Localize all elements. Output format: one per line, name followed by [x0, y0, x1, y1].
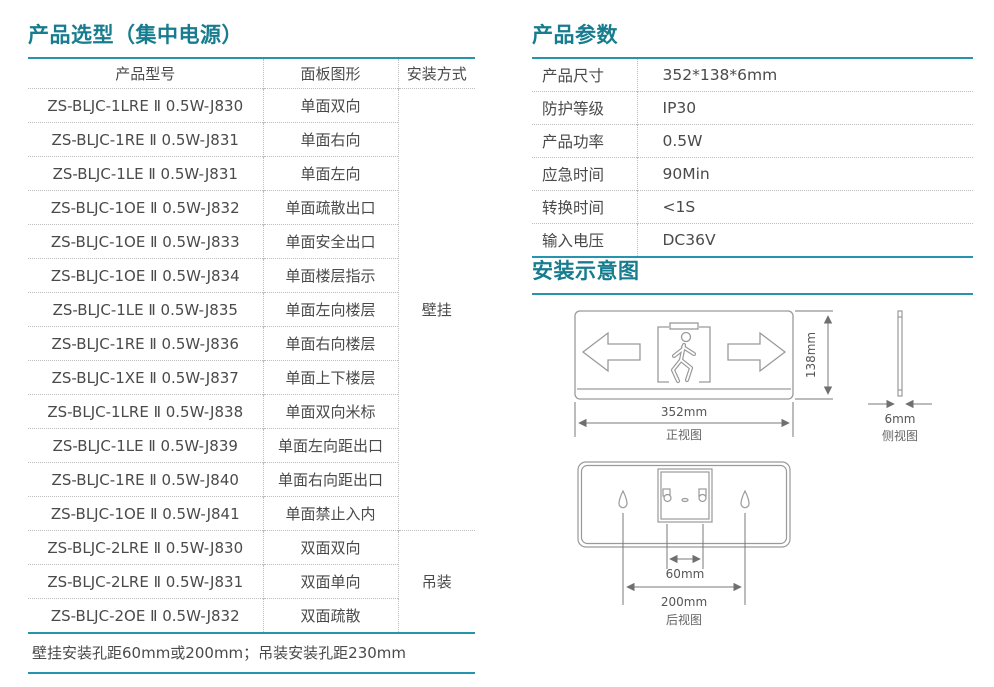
door-top-bar [670, 323, 698, 329]
rear-inner-outline [582, 466, 787, 544]
param-row: 防护等级 IP30 [532, 92, 973, 125]
model-cell: ZS-BLJC-2LRE Ⅱ 0.5W-J831 [28, 565, 263, 599]
param-label: 防护等级 [532, 92, 637, 125]
model-cell: ZS-BLJC-1LE Ⅱ 0.5W-J839 [28, 429, 263, 463]
panel-cell: 单面左向距出口 [263, 429, 398, 463]
param-label: 转换时间 [532, 191, 637, 224]
param-label: 产品功率 [532, 125, 637, 158]
door-left-bracket [658, 327, 669, 382]
param-value: 0.5W [637, 125, 973, 158]
box-screw-left-icon [663, 489, 671, 502]
side-profile [898, 311, 902, 396]
rear-outline [578, 462, 790, 547]
panel-cell: 单面上下楼层 [263, 361, 398, 395]
panel-cell: 单面疏散出口 [263, 191, 398, 225]
section-title-parameters: 产品参数 [532, 22, 973, 48]
mount-cell-wall: 壁挂 [398, 89, 475, 531]
box-screw-right-icon [699, 489, 706, 502]
model-cell: ZS-BLJC-1LE Ⅱ 0.5W-J835 [28, 293, 263, 327]
table-row: ZS-BLJC-1LRE Ⅱ 0.5W-J830 单面双向 壁挂 [28, 89, 475, 123]
model-cell: ZS-BLJC-1RE Ⅱ 0.5W-J840 [28, 463, 263, 497]
col-header-model: 产品型号 [28, 58, 263, 89]
product-parameters-table: 产品尺寸 352*138*6mm 防护等级 IP30 产品功率 0.5W 应急时… [532, 57, 973, 258]
model-cell: ZS-BLJC-1OE Ⅱ 0.5W-J841 [28, 497, 263, 531]
param-value: 90Min [637, 158, 973, 191]
section-title-selection: 产品选型（集中电源） [28, 22, 475, 48]
model-cell: ZS-BLJC-2LRE Ⅱ 0.5W-J830 [28, 531, 263, 565]
model-cell: ZS-BLJC-1OE Ⅱ 0.5W-J832 [28, 191, 263, 225]
param-label: 应急时间 [532, 158, 637, 191]
installation-rule [532, 293, 973, 295]
width-dimension-label: 352mm [661, 405, 707, 419]
inner-spacing-label: 60mm [666, 567, 705, 581]
model-cell: ZS-BLJC-1LRE Ⅱ 0.5W-J830 [28, 89, 263, 123]
panel-cell: 单面双向 [263, 89, 398, 123]
panel-cell: 单面楼层指示 [263, 259, 398, 293]
side-view-caption: 侧视图 [882, 428, 918, 443]
col-header-mount: 安装方式 [398, 58, 475, 89]
param-value: IP30 [637, 92, 973, 125]
side-view-diagram [898, 311, 902, 396]
rear-view-caption: 后视图 [666, 612, 702, 627]
panel-cell: 单面右向距出口 [263, 463, 398, 497]
param-row: 产品功率 0.5W [532, 125, 973, 158]
height-dimension-label: 138mm [804, 332, 818, 378]
model-cell: ZS-BLJC-1RE Ⅱ 0.5W-J836 [28, 327, 263, 361]
model-cell: ZS-BLJC-1LE Ⅱ 0.5W-J831 [28, 157, 263, 191]
outer-spacing-label: 200mm [661, 595, 707, 609]
panel-cell: 单面安全出口 [263, 225, 398, 259]
model-cell: ZS-BLJC-1OE Ⅱ 0.5W-J834 [28, 259, 263, 293]
model-cell: ZS-BLJC-2OE Ⅱ 0.5W-J832 [28, 599, 263, 634]
product-selection-table: 产品型号 面板图形 安装方式 ZS-BLJC-1LRE Ⅱ 0.5W-J830 … [28, 57, 475, 674]
mounting-footnote: 壁挂安装孔距60mm或200mm；吊装安装孔距230mm [28, 633, 475, 673]
panel-cell: 单面禁止入内 [263, 497, 398, 531]
section-title-installation: 安装示意图 [532, 258, 973, 284]
installation-diagram: 138mm 352mm 正视图 6mm 侧视图 [532, 297, 973, 645]
front-view-caption: 正视图 [666, 427, 702, 442]
model-cell: ZS-BLJC-1LRE Ⅱ 0.5W-J838 [28, 395, 263, 429]
model-cell: ZS-BLJC-1RE Ⅱ 0.5W-J831 [28, 123, 263, 157]
header-row: 产品型号 面板图形 安装方式 [28, 58, 475, 89]
panel-cell: 双面疏散 [263, 599, 398, 634]
model-cell: ZS-BLJC-1OE Ⅱ 0.5W-J833 [28, 225, 263, 259]
param-label: 产品尺寸 [532, 58, 637, 92]
front-view-diagram [575, 311, 793, 399]
left-arrow-icon [583, 333, 640, 371]
param-value: 352*138*6mm [637, 58, 973, 92]
table-row: ZS-BLJC-2LRE Ⅱ 0.5W-J830 双面双向 吊装 [28, 531, 475, 565]
panel-cell: 单面左向楼层 [263, 293, 398, 327]
param-label: 输入电压 [532, 224, 637, 258]
running-man-icon [673, 333, 694, 382]
panel-cell: 双面双向 [263, 531, 398, 565]
keyhole-left-icon [619, 491, 627, 508]
right-column: 产品参数 产品尺寸 352*138*6mm 防护等级 IP30 产品功率 0.5… [532, 22, 973, 649]
panel-cell: 单面右向楼层 [263, 327, 398, 361]
mount-cell-ceiling: 吊装 [398, 531, 475, 634]
panel-cell: 双面单向 [263, 565, 398, 599]
panel-cell: 单面右向 [263, 123, 398, 157]
panel-cell: 单面左向 [263, 157, 398, 191]
col-header-panel: 面板图形 [263, 58, 398, 89]
panel-cell: 单面双向米标 [263, 395, 398, 429]
param-row: 输入电压 DC36V [532, 224, 973, 258]
rear-view-diagram [578, 462, 790, 547]
param-value: DC36V [637, 224, 973, 258]
param-value: <1S [637, 191, 973, 224]
param-row: 转换时间 <1S [532, 191, 973, 224]
param-row: 产品尺寸 352*138*6mm [532, 58, 973, 92]
right-arrow-icon [728, 333, 785, 371]
footnote-row: 壁挂安装孔距60mm或200mm；吊装安装孔距230mm [28, 633, 475, 673]
center-slot [682, 499, 688, 502]
thickness-dimension-label: 6mm [884, 412, 915, 426]
product-selection-section: 产品选型（集中电源） 产品型号 面板图形 安装方式 ZS-BLJC-1LRE Ⅱ… [28, 22, 475, 674]
rear-view-dimensions [623, 513, 745, 605]
param-row: 应急时间 90Min [532, 158, 973, 191]
keyhole-right-icon [741, 491, 749, 508]
door-right-bracket [699, 327, 710, 382]
model-cell: ZS-BLJC-1XE Ⅱ 0.5W-J837 [28, 361, 263, 395]
